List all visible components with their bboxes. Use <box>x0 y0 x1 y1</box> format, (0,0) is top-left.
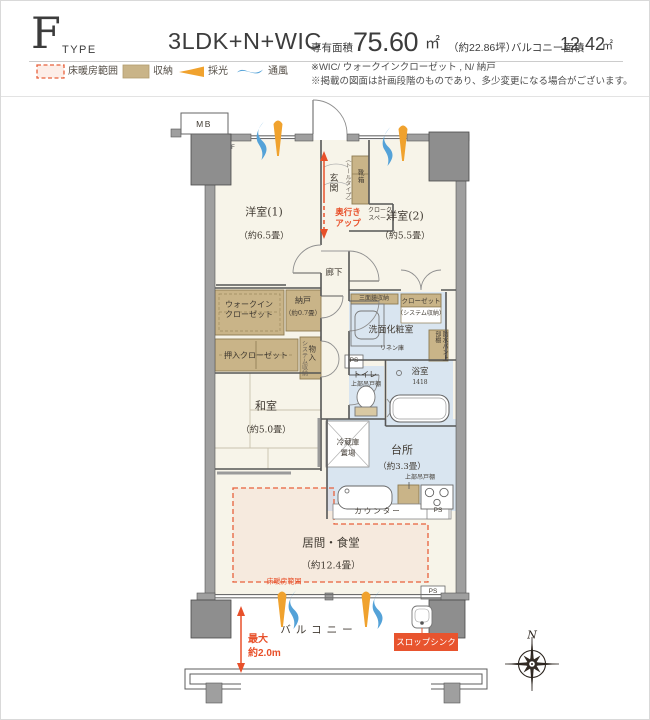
note-line2: ※掲載の図面は計画段階のものであり、多少変更になる場合がございます。 <box>311 76 633 87</box>
label-linen: リネン庫 <box>380 346 404 352</box>
ps-label-2: PS <box>434 508 443 515</box>
legend-daylight: 採光 <box>208 67 228 77</box>
pillar-f-mark: F <box>231 145 235 151</box>
label-corridor: 廊下 <box>325 269 342 278</box>
compass-north-label: N <box>527 630 537 641</box>
ps-label-3: PS <box>429 589 438 596</box>
label-western-room2-size: （約5.5畳） <box>380 233 430 242</box>
label-washroom: 洗面化粧室 <box>368 327 413 336</box>
label-monoire-note: システム収納 <box>301 340 307 376</box>
label-shoe-box: 靴箱 <box>357 169 364 184</box>
balcony-area-value: 12.42 <box>560 35 605 53</box>
floor-heating-swatch <box>37 65 64 78</box>
label-shoe-box-note: （トールタイプ） <box>344 156 350 204</box>
daylight-arrow-icon <box>278 592 287 628</box>
label-bath-size: 1418 <box>412 380 427 386</box>
area-unit: ㎡ <box>425 36 440 51</box>
daylight-arrow-icon <box>362 592 371 628</box>
daylight-arrow-icon <box>179 67 204 78</box>
type-word: TYPE <box>62 45 97 56</box>
label-cloak-space-2: スペース <box>368 216 391 222</box>
mb-label: MB <box>196 120 212 129</box>
layout-label: 3LDK+N+WIC <box>168 30 322 54</box>
balcony-area-unit: ㎡ <box>602 41 613 52</box>
label-slop-sink: スロップシンク <box>396 638 456 647</box>
label-japanese-room: 和室 <box>255 401 277 412</box>
max-depth-arrow-icon <box>237 606 245 673</box>
legend-ventilation: 通風 <box>268 67 288 77</box>
floorplan-svg <box>1 1 650 720</box>
label-counter: カウンター <box>354 507 402 515</box>
label-nando-size: （約0.7畳） <box>285 310 321 317</box>
label-living-dining-size: （約12.4畳） <box>301 561 360 571</box>
label-fridge-2: 置場 <box>341 449 356 457</box>
label-toilet-shelf: 上部吊戸棚 <box>351 382 381 388</box>
label-floor-heating-zone: 床暖房範囲 <box>267 579 302 586</box>
label-mirror-storage: 三面鏡収納 <box>359 296 389 302</box>
area-value: 75.60 <box>353 29 418 56</box>
label-hanging-shelf: 上部吊戸棚 <box>405 475 435 481</box>
label-max-depth-1: 最大 <box>248 635 268 645</box>
legend-storage: 収納 <box>153 67 173 77</box>
label-waterproof-shelf: 防水パン上部棚 <box>429 331 448 361</box>
label-depth-up-1: 奥行き <box>335 208 361 217</box>
type-letter: F <box>31 13 61 56</box>
label-western-room1: 洋室(1) <box>245 207 283 218</box>
label-nando: 納戸 <box>295 297 311 305</box>
label-wic-2: クローゼット <box>225 311 273 319</box>
label-cloak-space-1: クローク <box>368 208 392 214</box>
label-monoire: 物入 <box>308 345 316 362</box>
storage-swatch <box>123 65 149 78</box>
ventilation-arrow-icon <box>237 70 263 74</box>
label-max-depth-2: 約2.0m <box>248 649 281 659</box>
label-kitchen-size: （約3.3畳） <box>378 463 426 472</box>
label-bath: 浴室 <box>411 368 428 377</box>
label-entrance: 玄関 <box>328 173 337 193</box>
compass-icon <box>505 637 559 691</box>
balcony-railing <box>185 669 487 689</box>
label-depth-up-2: アップ <box>335 219 361 228</box>
label-kitchen: 台所 <box>391 445 413 456</box>
label-closet: クローゼット <box>402 298 441 305</box>
floorplan-page: F TYPE 3LDK+N+WIC 専有面積 75.60 ㎡ （約22.86坪）… <box>0 0 650 720</box>
ps-label-1: PS <box>350 358 359 365</box>
area-tsubo: （約22.86坪） <box>448 43 516 54</box>
ventilation-arrow-icon <box>373 590 383 629</box>
area-label: 専有面積 <box>311 43 353 54</box>
label-oshiire-closet: 押入クローゼット <box>224 352 288 360</box>
legend-floor-heating: 床暖房範囲 <box>68 67 118 77</box>
label-fridge-1: 冷蔵庫 <box>337 438 360 446</box>
label-japanese-room-size: （約5.0畳） <box>241 427 291 436</box>
label-toilet: トイレ <box>353 371 377 379</box>
label-balcony: バルコニー <box>280 625 357 636</box>
label-western-room1-size: （約6.5畳） <box>239 233 289 242</box>
label-living-dining: 居間・食堂 <box>302 537 360 549</box>
label-closet-note: （システム収納） <box>397 311 445 317</box>
label-wic-1: ウォークイン <box>225 301 273 309</box>
header-bottom-line <box>1 96 650 97</box>
note-line1: ※WIC/ ウォークインクローゼット , N/ 納戸 <box>311 62 496 73</box>
